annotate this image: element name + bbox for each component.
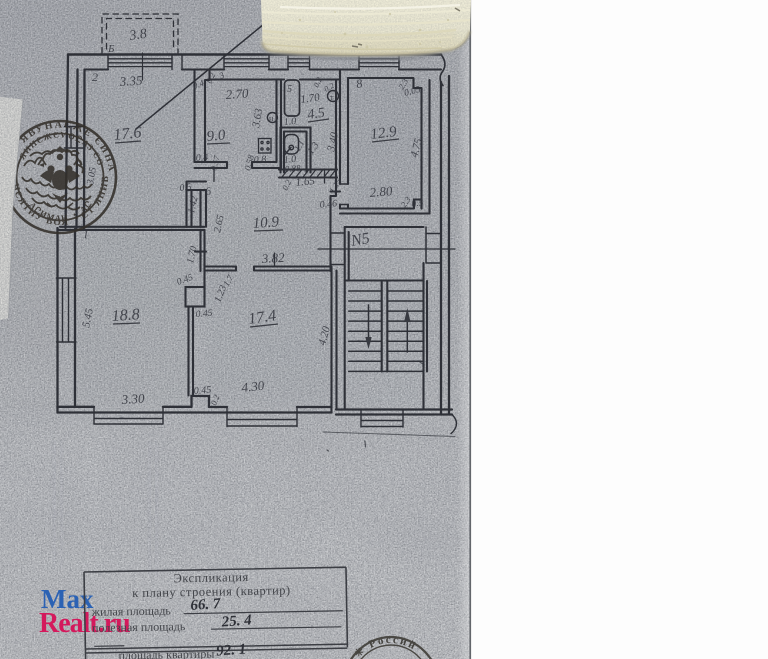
svg-text:1: 1 [83,229,89,241]
svg-text:5: 5 [287,84,292,95]
svg-text:4.30: 4.30 [241,378,266,395]
svg-text:2: 2 [92,70,98,84]
svg-text:2.70: 2.70 [225,85,249,102]
svg-text:1.0: 1.0 [283,116,296,128]
svg-text:3.82: 3.82 [260,250,285,266]
svg-text:т: т [330,93,334,102]
svg-text:10.9: 10.9 [252,214,280,232]
svg-text:18.8: 18.8 [111,306,140,325]
svg-text:жилая площадь: жилая площадь [91,603,172,618]
svg-text:2.80: 2.80 [369,183,393,200]
svg-text:0.88: 0.88 [284,163,301,174]
svg-text:Экспликация: Экспликация [173,570,248,585]
svg-text:1.65: 1.65 [295,175,316,189]
svg-text:3.35: 3.35 [118,72,143,89]
svg-text:площадь квартиры: площадь квартиры [118,647,214,659]
svg-text:92. 1: 92. 1 [216,641,247,659]
svg-text:полезная площадь: полезная площадь [92,619,186,635]
svg-text:3.8: 3.8 [127,27,147,44]
svg-text:N5: N5 [349,230,371,250]
svg-text:0.45: 0.45 [193,385,211,397]
svg-text:0.46: 0.46 [319,198,338,211]
svg-text:0.4: 0.4 [195,152,208,164]
svg-text:0.5: 0.5 [411,198,425,210]
svg-text:0.45: 0.45 [195,309,213,320]
svg-text:3.30: 3.30 [120,390,145,407]
svg-text:25. 4: 25. 4 [220,612,253,630]
svg-text:Б: Б [107,43,115,55]
svg-text:н: н [269,114,274,123]
svg-text:66. 7: 66. 7 [190,596,222,614]
svg-text:0.8: 0.8 [253,154,266,166]
svg-text:0.5: 0.5 [179,182,192,194]
svg-text:9.0: 9.0 [206,127,227,145]
